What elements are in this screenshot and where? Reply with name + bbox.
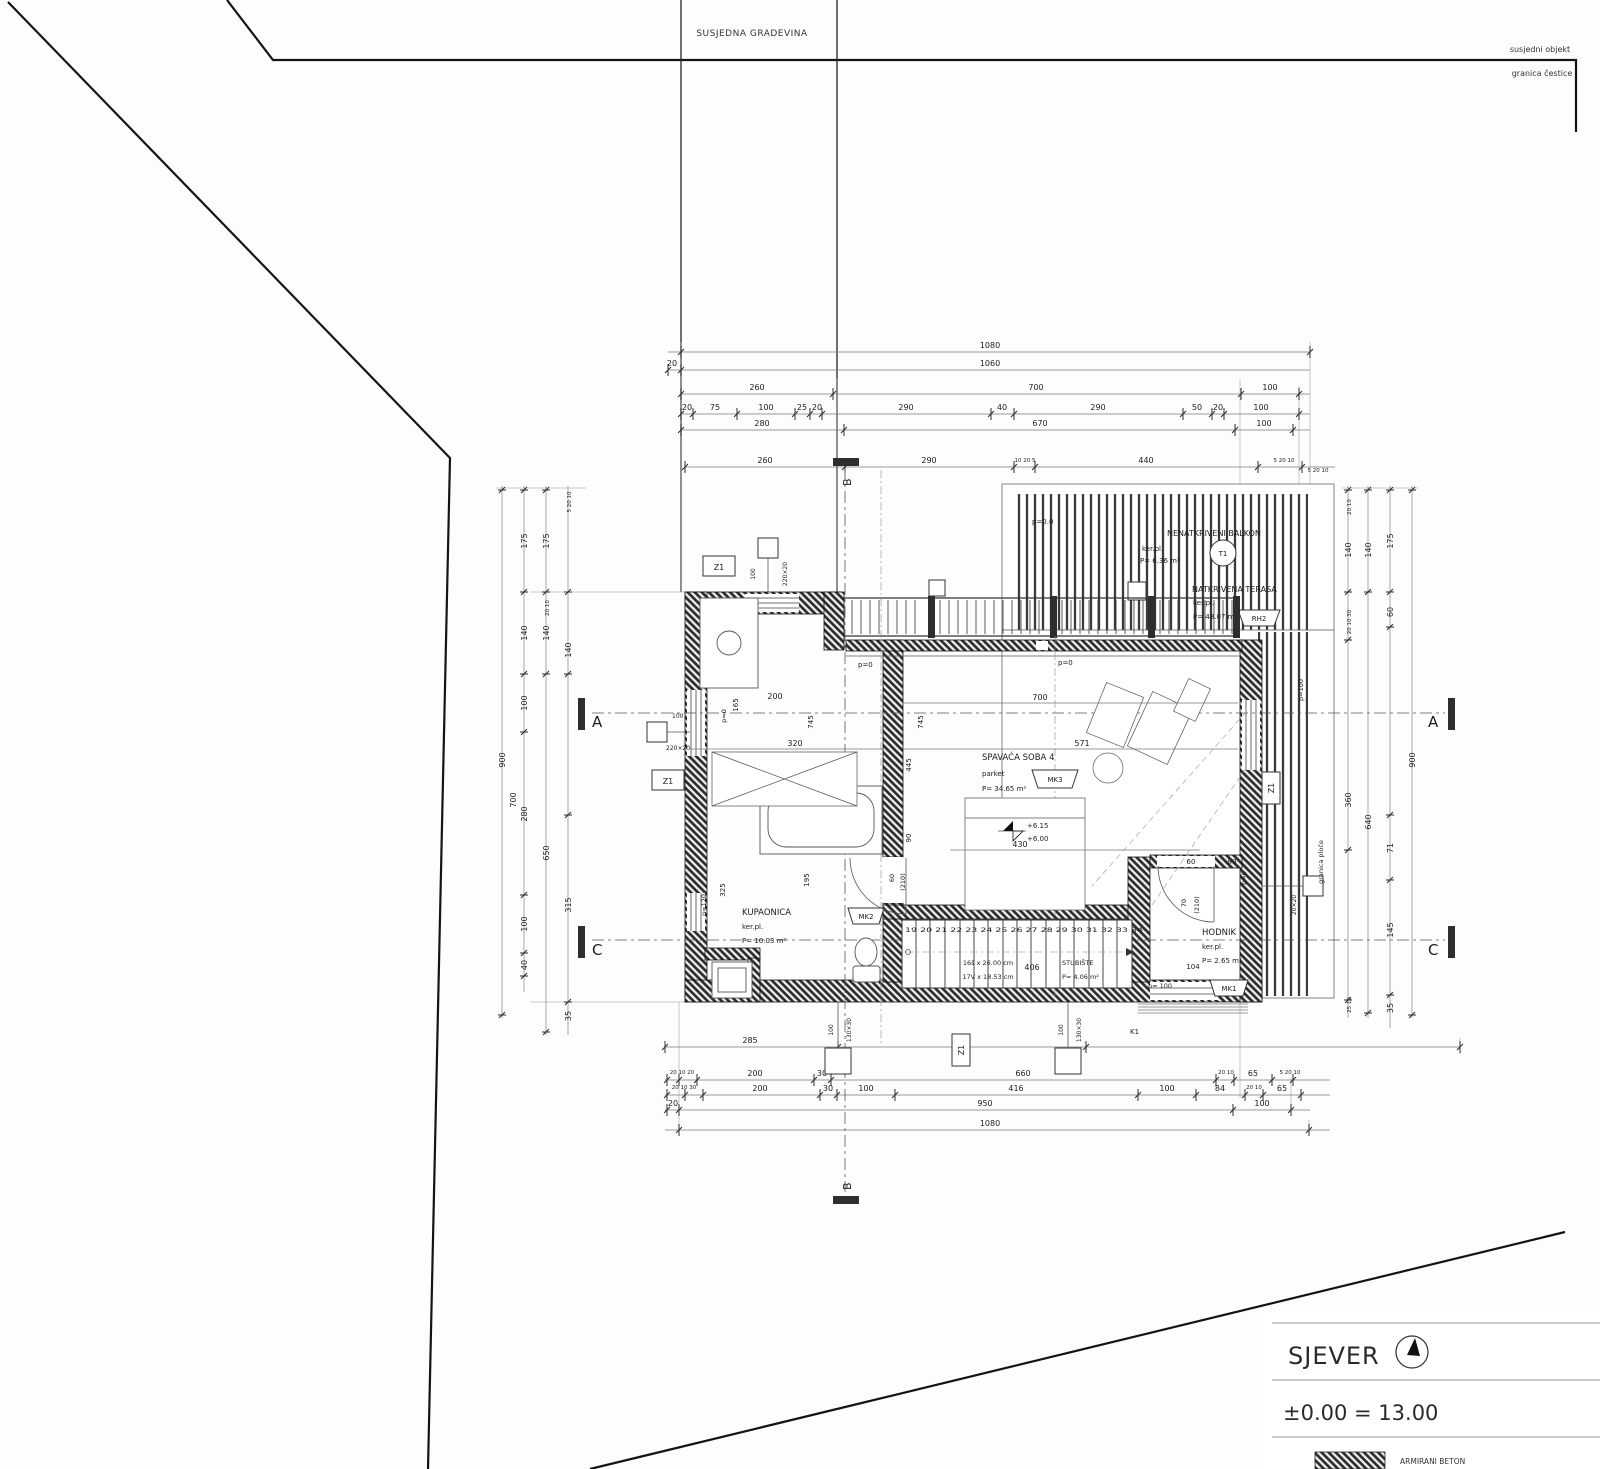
k1-label: K1 <box>1130 1028 1139 1036</box>
dim-text: 175 <box>542 533 551 548</box>
bedroom-floor: parket <box>982 770 1005 778</box>
dim-text: 20 <box>1213 403 1223 412</box>
dim-text: 90 <box>905 834 913 843</box>
section-letter: B <box>841 1182 854 1190</box>
dim-text: 406 <box>1024 963 1039 972</box>
dim-text: 20 <box>812 403 822 412</box>
dim-text: 325 <box>719 883 727 896</box>
p-label: p=0 <box>1240 871 1248 885</box>
hall-badge: MK1 <box>1221 985 1236 993</box>
dim-text: 5 20 10 <box>1280 1070 1301 1076</box>
p-label: p=0 <box>858 661 873 669</box>
dim-text: 430 <box>1012 840 1027 849</box>
section-letter: A <box>1428 713 1439 731</box>
north-label: SJEVER <box>1288 1342 1380 1370</box>
dim-text: 5 20 10 <box>567 491 573 512</box>
dim-text: 100 <box>1262 383 1277 392</box>
dim-text: 100 <box>758 403 773 412</box>
north-icon <box>1396 1336 1428 1368</box>
dim-text: 1080 <box>980 1119 1000 1128</box>
p-label: p=0 <box>1058 659 1073 667</box>
parcel-boundary-label: granica čestice <box>1512 68 1573 78</box>
balcony-name: NENATKRIVENI BALKON <box>1167 529 1261 538</box>
dim-text: 1060 <box>980 359 1000 368</box>
bathroom-name: KUPAONICA <box>742 908 791 918</box>
dim-text: 745 <box>917 715 925 728</box>
dim-text: 260 <box>757 456 772 465</box>
column-label: 220×20 <box>782 562 789 586</box>
hall-floor: ker.pl. <box>1202 943 1223 951</box>
dim-text: 145 <box>1386 922 1395 937</box>
dim-text: 20 <box>668 1099 678 1108</box>
door-dim: 60 <box>888 874 896 882</box>
stairs-line1: 16š x 26.00 cm <box>963 959 1013 967</box>
column-label: 100 <box>1058 1024 1065 1036</box>
side-table <box>1093 753 1123 783</box>
material-label: ARMIRANI BETON <box>1400 1457 1465 1466</box>
dim-text: 100 <box>520 695 529 710</box>
floor-plan-sheet: SUSJEDNA GRADEVINA susjedni objekt grani… <box>0 0 1600 1469</box>
section-marker-c-left: C <box>578 926 602 959</box>
dim-text: 175 <box>1386 533 1395 548</box>
dim-text: 20 10 30 <box>672 1085 697 1091</box>
dim-text: 416 <box>1008 1084 1023 1093</box>
p-label: p=120 <box>700 894 708 916</box>
toilet <box>855 938 877 966</box>
door-dim: (210) <box>899 873 907 890</box>
dim-text: 35 <box>1386 1003 1395 1013</box>
railing-post <box>929 580 945 596</box>
dim-text: 900 <box>1408 752 1417 767</box>
section-marker-a-left: A <box>578 698 603 731</box>
section-letter: C <box>592 941 602 959</box>
level-equation: ±0.00 = 13.00 <box>1283 1401 1438 1425</box>
dim-text: 650 <box>542 845 551 860</box>
dim-text: 140 <box>1344 542 1353 557</box>
dim-text: 200 <box>747 1069 762 1078</box>
dim-text: 140 <box>1364 542 1373 557</box>
stairs-area: P= 4.06 m² <box>1062 973 1099 981</box>
dim-text: 745 <box>807 715 815 728</box>
dim-text: 280 <box>520 806 529 821</box>
dim-text: 700 <box>509 792 518 807</box>
terrace-post <box>1128 582 1146 600</box>
p-label: p= 100 <box>1148 982 1172 990</box>
section-marker-a-right: A <box>1428 698 1455 731</box>
dim-text: 100 <box>520 916 529 931</box>
neighbor-building-label: SUSJEDNA GRADEVINA <box>696 29 808 39</box>
door-dim: 70 <box>1180 899 1188 907</box>
hall-name: HODNIK <box>1202 928 1236 938</box>
balcony-area: P= 6.36 m² <box>1140 557 1180 565</box>
column-label: 220×20 <box>666 745 690 752</box>
bed <box>965 798 1085 910</box>
entry-threshold <box>1138 1004 1248 1013</box>
column-label: 100 <box>828 1024 835 1036</box>
dim-text: 700 <box>1032 693 1047 702</box>
p-label: p=0.0 <box>1032 518 1053 526</box>
bathroom-badge: MK2 <box>858 913 873 921</box>
p-label: p=100 <box>1297 679 1305 701</box>
dim-text: 290 <box>921 456 936 465</box>
dim-text: 84 <box>1215 1084 1225 1093</box>
balcony-floor: ker.pl. <box>1142 545 1163 553</box>
level-lower: +6.00 <box>1027 835 1048 843</box>
dim-text: 165 <box>732 698 740 711</box>
stairs-name: STUBIŠTE <box>1062 958 1093 967</box>
legend-block: SJEVER ±0.00 = 13.00 ARMIRANI BETON <box>1258 1312 1600 1469</box>
dim-text: 20 10 <box>1246 1085 1262 1091</box>
z1-label: Z1 <box>1267 783 1276 794</box>
column-label: 130×30 <box>1076 1018 1083 1042</box>
section-marker-c-right: C <box>1428 926 1455 959</box>
dim-text: 20 <box>667 359 677 368</box>
parcel-boundary <box>8 0 1576 1469</box>
dim-text: 20 10 <box>1218 1070 1234 1076</box>
dim-text: 30 <box>823 1084 833 1093</box>
section-letter: A <box>592 713 603 731</box>
column-label: 20×20 <box>1291 895 1298 915</box>
dim-text: 75 <box>710 403 720 412</box>
section-marker-b-bottom: B <box>833 1182 859 1204</box>
toilet-tank <box>853 966 880 982</box>
stair-step-numbers: 19 20 21 22 23 24 25 26 27 28 29 30 31 3… <box>905 927 1143 934</box>
dim-text: 100 <box>1253 403 1268 412</box>
dim-text: 25 <box>797 403 807 412</box>
dim-text: 80 <box>1228 858 1237 866</box>
dimension-rows-top: 1080 20 1060 260 700 100 20 75 100 25 20… <box>665 341 1335 473</box>
material-swatch <box>1315 1452 1385 1469</box>
dim-text: 10 20 5 <box>1015 458 1036 464</box>
dim-text: 440 <box>1138 456 1153 465</box>
section-letter: B <box>841 478 854 486</box>
dim-text: 100 <box>858 1084 873 1093</box>
dim-text: 71 <box>1386 843 1395 853</box>
dim-text: 260 <box>749 383 764 392</box>
dim-text: 200 <box>767 692 782 701</box>
dim-text: 40 <box>997 403 1007 412</box>
bedroom-name: SPAVAĆA SOBA 4 <box>982 751 1054 763</box>
dim-text: 175 <box>520 533 529 548</box>
slab-edge-label: granica ploče <box>1317 840 1325 884</box>
column-label: 100 <box>672 713 684 720</box>
dim-text: 100 <box>1159 1084 1174 1093</box>
dim-text: 1080 <box>980 341 1000 350</box>
dimension-columns-left: 900 700 175 140 100 280 100 40 175 140 6… <box>498 486 573 1035</box>
floor-plan-drawing: SUSJEDNA GRADEVINA susjedni objekt grani… <box>0 0 1600 1469</box>
bidet-inner <box>718 968 746 992</box>
room-stairs: 19 20 21 22 23 24 25 26 27 28 29 30 31 3… <box>902 920 1143 988</box>
dim-text: 195 <box>803 873 811 886</box>
balcony-badge: T1 <box>1218 550 1228 558</box>
hall-area: P= 2.65 m² <box>1202 957 1242 965</box>
dim-text: 660 <box>1015 1069 1030 1078</box>
dim-text: 60 <box>1386 607 1395 617</box>
dim-text: 360 <box>1344 792 1353 807</box>
dim-text: 20 10 <box>545 600 551 616</box>
door-dim: (210) <box>1193 896 1201 913</box>
bathroom-area: P= 10.03 m² <box>742 937 786 945</box>
dim-text: 700 <box>1028 383 1043 392</box>
dim-text: 290 <box>1090 403 1105 412</box>
z1-label: Z1 <box>957 1045 966 1056</box>
dim-text: 315 <box>564 897 573 912</box>
neighbor-object-label: susjedni objekt <box>1510 45 1570 54</box>
section-letter: C <box>1428 941 1438 959</box>
dim-text: 900 <box>498 752 507 767</box>
terrace-area: P= 48.07 m² <box>1193 613 1237 621</box>
dim-text: 40 <box>520 960 529 970</box>
dim-text: 60 <box>1187 858 1196 866</box>
dim-text: 20 10 30 <box>1347 609 1353 634</box>
dim-text: 20 10 20 <box>670 1070 695 1076</box>
dim-text: 5 20 10 <box>1308 468 1329 474</box>
bathroom-floor: ker.pl. <box>742 923 763 931</box>
dim-text: 640 <box>1364 814 1373 829</box>
dim-text: 65 <box>1277 1084 1287 1093</box>
bedroom-badge: MK3 <box>1047 776 1062 784</box>
neighbor-building-lines <box>681 0 837 597</box>
dim-text: 100 <box>1254 1099 1269 1108</box>
dim-text: 140 <box>520 625 529 640</box>
dim-text: 50 <box>1192 403 1202 412</box>
dim-text: 100 <box>1256 419 1271 428</box>
dim-text: 5 20 10 <box>1274 458 1295 464</box>
bedroom-area: P= 34.65 m² <box>982 785 1026 793</box>
dim-text: 670 <box>1032 419 1047 428</box>
dim-text: 35 <box>564 1011 573 1021</box>
z1-label: Z1 <box>714 563 725 572</box>
stairs-line2: 17V x 18.53 cm <box>962 973 1013 981</box>
dim-text: 104 <box>1186 963 1200 971</box>
dim-text: 290 <box>898 403 913 412</box>
dim-text: 950 <box>977 1099 992 1108</box>
level-upper: +6.15 <box>1027 822 1048 830</box>
dim-text: 200 <box>752 1084 767 1093</box>
dim-text: 285 <box>742 1036 757 1045</box>
dim-text: 65 <box>1248 1069 1258 1078</box>
column-label: 100 <box>750 568 757 580</box>
dim-text: 20 10 <box>1347 499 1353 515</box>
p-label: p=0 <box>720 709 728 723</box>
z1-label: Z1 <box>663 777 674 786</box>
dim-text: 571 <box>1074 739 1089 748</box>
terrace-badge: RH2 <box>1252 615 1267 623</box>
dim-text: 445 <box>905 758 913 771</box>
dim-text: 280 <box>754 419 769 428</box>
dim-text: 140 <box>564 642 573 657</box>
terrace-name: NATKRIVENA TERASA <box>1192 585 1277 594</box>
dim-text: 320 <box>787 739 802 748</box>
column-label: 130×30 <box>846 1018 853 1042</box>
dim-text: 25 10 <box>1347 997 1353 1013</box>
shower-drain <box>717 631 741 655</box>
dim-text: 140 <box>542 625 551 640</box>
dim-text: 20 <box>682 403 692 412</box>
